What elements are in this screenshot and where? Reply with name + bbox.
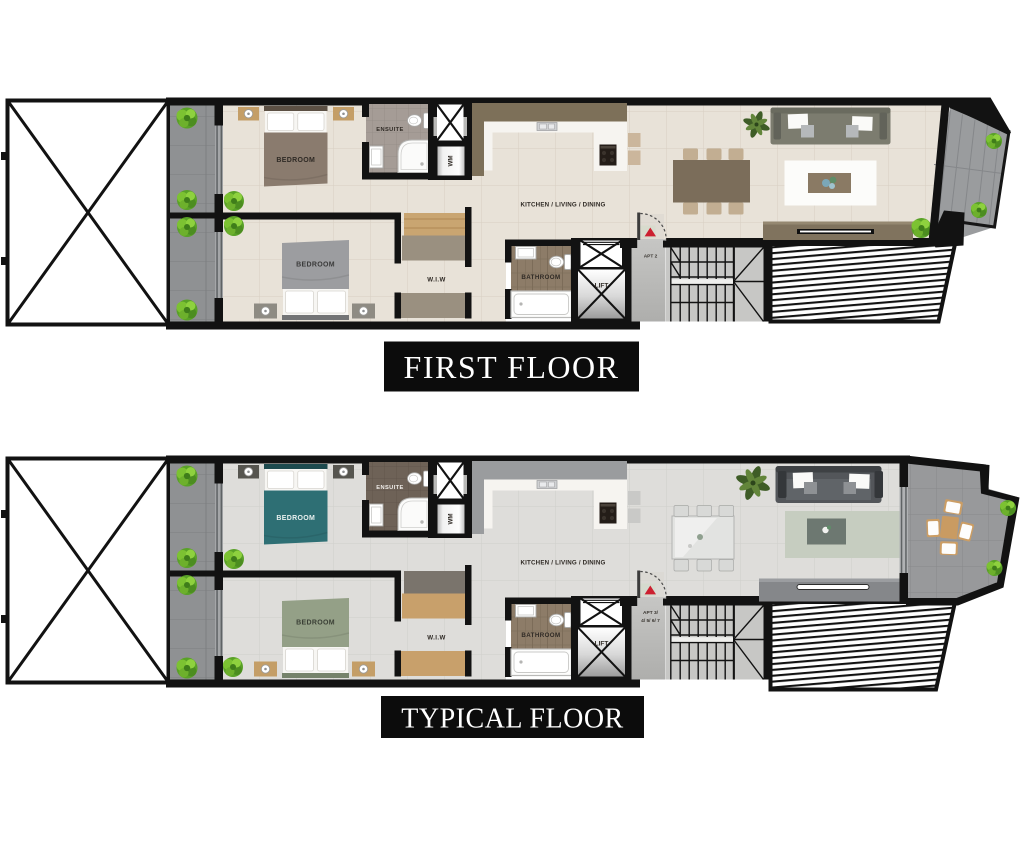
svg-text:KITCHEN / LIVING / DINING: KITCHEN / LIVING / DINING <box>520 202 605 209</box>
svg-text:W.I.W: W.I.W <box>427 635 446 642</box>
svg-text:4/ 5/ 6/ 7: 4/ 5/ 6/ 7 <box>641 618 660 624</box>
svg-text:WM: WM <box>448 514 455 525</box>
svg-text:BATHROOM: BATHROOM <box>521 274 560 281</box>
svg-text:TYPICAL FLOOR: TYPICAL FLOOR <box>401 704 623 735</box>
svg-text:APT 2: APT 2 <box>644 254 658 260</box>
svg-text:WM: WM <box>448 156 455 167</box>
svg-text:LIFT: LIFT <box>595 283 609 290</box>
svg-text:ENSUITE: ENSUITE <box>376 127 403 133</box>
svg-text:W.I.W: W.I.W <box>427 277 446 284</box>
svg-text:FIRST FLOOR: FIRST FLOOR <box>404 349 620 385</box>
svg-text:BEDROOM: BEDROOM <box>296 262 335 269</box>
svg-text:BEDROOM: BEDROOM <box>276 157 315 164</box>
svg-text:LIFT: LIFT <box>595 641 609 648</box>
svg-text:KITCHEN / LIVING / DINING: KITCHEN / LIVING / DINING <box>520 560 605 567</box>
svg-text:BATHROOM: BATHROOM <box>521 632 560 639</box>
svg-text:BEDROOM: BEDROOM <box>296 620 335 627</box>
svg-text:ENSUITE: ENSUITE <box>376 485 403 491</box>
svg-text:APT 3/: APT 3/ <box>643 610 659 616</box>
svg-text:BEDROOM: BEDROOM <box>276 515 315 522</box>
